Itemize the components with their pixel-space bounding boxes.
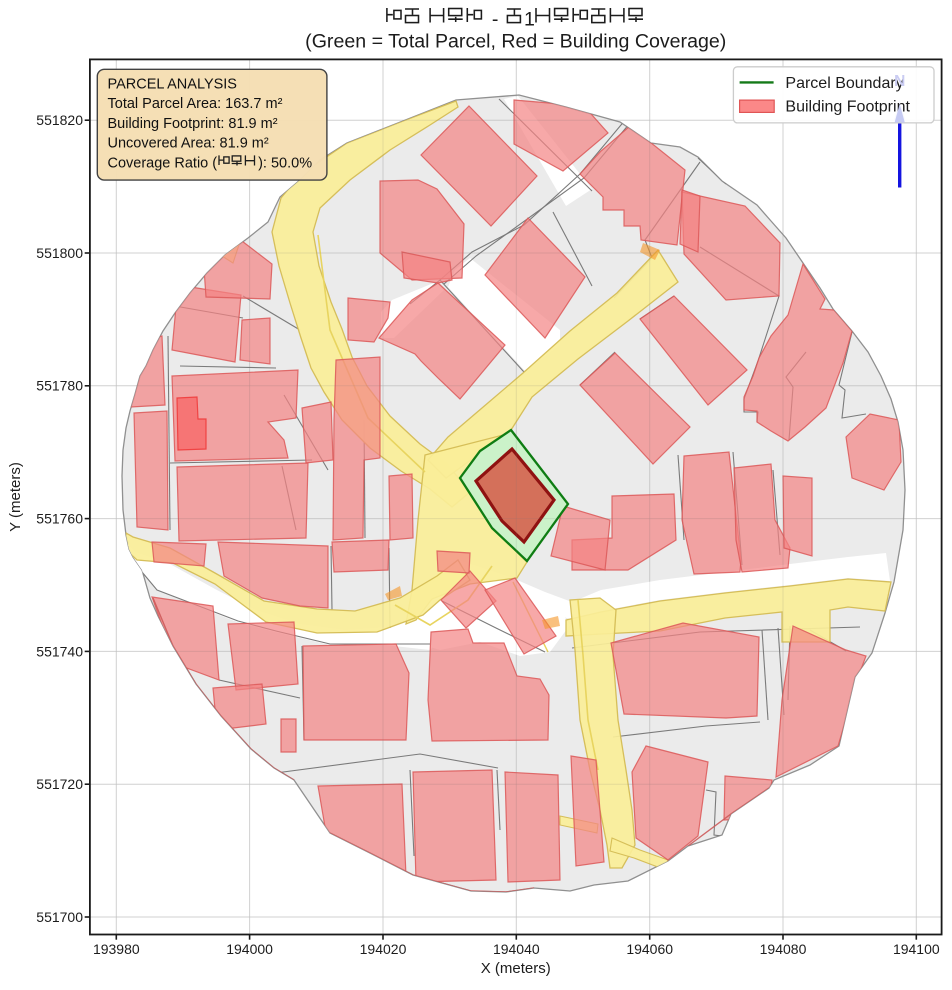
svg-text:X (meters): X (meters) (481, 960, 551, 977)
svg-text:551740: 551740 (36, 643, 83, 659)
svg-text:551720: 551720 (36, 776, 83, 792)
svg-text:Uncovered Area: 81.9 m²: Uncovered Area: 81.9 m² (108, 136, 269, 152)
svg-text:194040: 194040 (493, 941, 540, 957)
svg-text:194020: 194020 (360, 941, 407, 957)
svg-text:Parcel Boundary: Parcel Boundary (785, 75, 903, 92)
svg-text:551820: 551820 (36, 112, 83, 128)
svg-text:Y (meters): Y (meters) (7, 462, 24, 532)
svg-text:193980: 193980 (93, 941, 140, 957)
svg-text:Total Parcel Area: 163.7 m²: Total Parcel Area: 163.7 m² (108, 96, 283, 112)
svg-text:194060: 194060 (626, 941, 673, 957)
svg-text:194080: 194080 (760, 941, 807, 957)
svg-text:Building Footprint: Building Footprint (785, 99, 910, 116)
svg-text:Building Footprint: 81.9 m²: Building Footprint: 81.9 m² (108, 116, 278, 132)
svg-text:): 50.0%: ): 50.0% (258, 155, 312, 171)
svg-text:-: - (492, 9, 499, 31)
svg-text:551780: 551780 (36, 378, 83, 394)
svg-text:Coverage Ratio (: Coverage Ratio ( (108, 155, 218, 171)
svg-text:194000: 194000 (226, 941, 273, 957)
svg-text:551760: 551760 (36, 511, 83, 527)
svg-text:(Green = Total Parcel, Red = B: (Green = Total Parcel, Red = Building Co… (305, 31, 726, 53)
svg-text:1: 1 (524, 9, 535, 31)
svg-text:551700: 551700 (36, 909, 83, 925)
svg-text:194100: 194100 (893, 941, 940, 957)
svg-text:N: N (894, 73, 905, 90)
svg-text:551800: 551800 (36, 245, 83, 261)
svg-text:PARCEL ANALYSIS: PARCEL ANALYSIS (108, 77, 237, 93)
